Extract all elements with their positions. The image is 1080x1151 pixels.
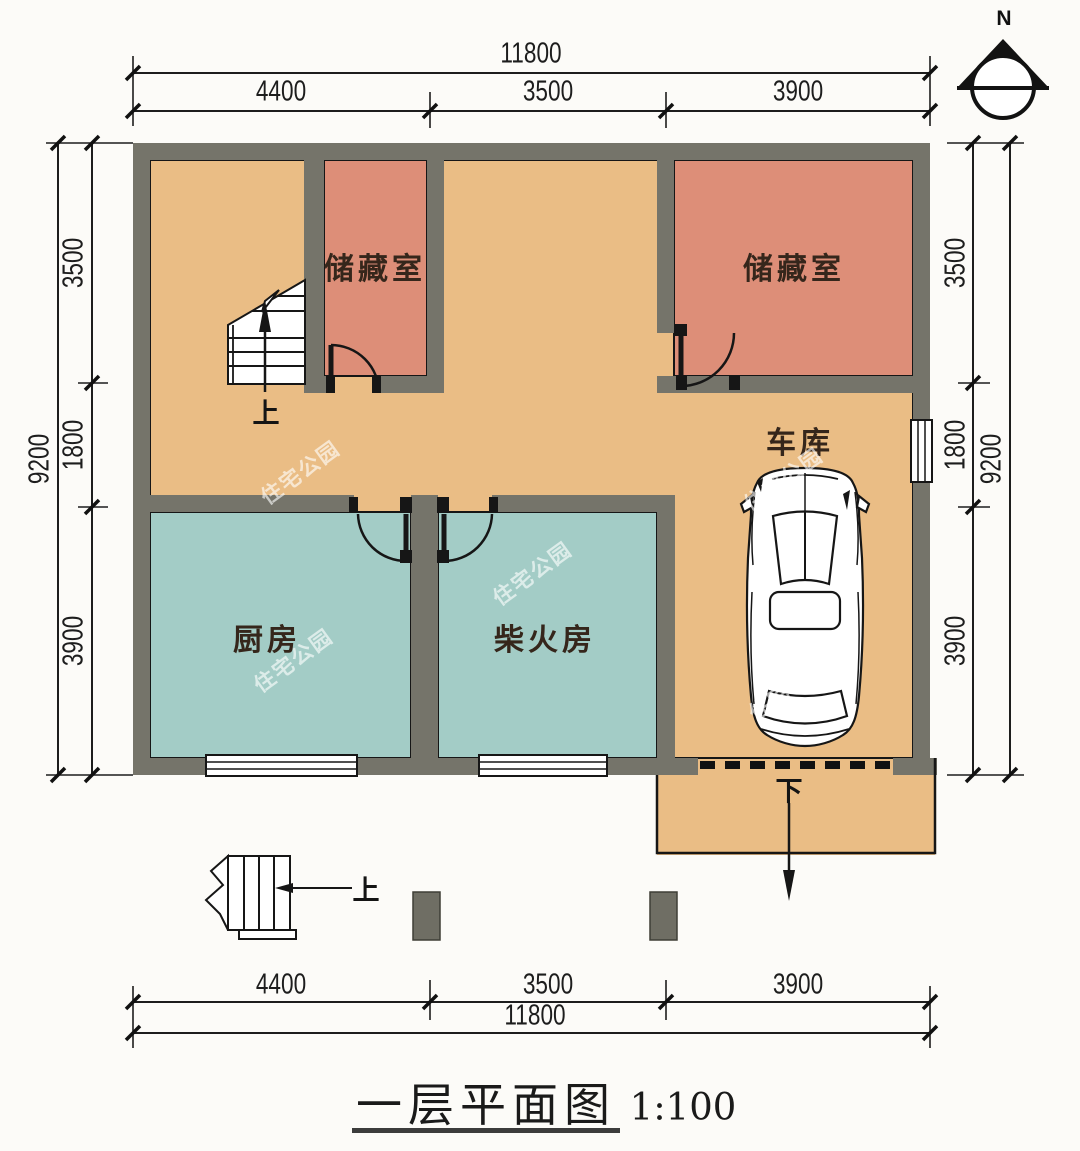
entry-up-label: 上 [353, 869, 380, 908]
dim-bottom-overall: 11800 [504, 1000, 565, 1033]
dim-right-seg1: 3500 [940, 238, 973, 288]
drawing-title: 一层平面图 [356, 1069, 616, 1135]
drawing-scale: 1:100 [630, 1086, 737, 1129]
dim-left-seg3: 3900 [58, 616, 91, 666]
stair-up-label: 上 [253, 392, 280, 431]
dim-top-overall: 11800 [500, 38, 561, 71]
dim-right-overall: 9200 [976, 434, 1009, 484]
stair-exterior [206, 856, 352, 939]
dim-right-seg2: 1800 [940, 420, 973, 470]
pillar [650, 892, 677, 940]
room-label-firewood: 柴火房 [494, 615, 596, 659]
dim-right-seg3: 3900 [940, 616, 973, 666]
roof-panel [770, 592, 840, 629]
dim-top-seg1: 4400 [256, 76, 306, 109]
dim-bottom-seg2: 3500 [523, 969, 573, 1002]
room-label-storage-left: 储藏室 [324, 244, 426, 288]
dim-bottom-seg1: 4400 [256, 969, 306, 1002]
north-arrow-icon [957, 39, 1049, 118]
window-kitchen [206, 755, 357, 776]
dim-left-seg2: 1800 [58, 420, 91, 470]
north-label: N [996, 7, 1011, 31]
pillar [413, 892, 440, 940]
stair-break-mark [206, 856, 228, 930]
dim-top-seg2: 3500 [523, 76, 573, 109]
porch-pillars [413, 892, 677, 940]
window-firewood [479, 755, 607, 776]
dim-bottom-seg3: 3900 [773, 969, 823, 1002]
window-right [911, 420, 932, 482]
dim-left-overall: 9200 [24, 434, 57, 484]
dim-top-seg3: 3900 [773, 76, 823, 109]
floorplan-canvas: 11800 4400 3500 3900 4400 3500 3900 1180… [0, 0, 1080, 1151]
garage-down-label: 下 [776, 770, 803, 809]
dim-left-seg1: 3500 [58, 238, 91, 288]
title-underline [352, 1128, 620, 1133]
room-label-storage-right: 储藏室 [743, 244, 845, 288]
